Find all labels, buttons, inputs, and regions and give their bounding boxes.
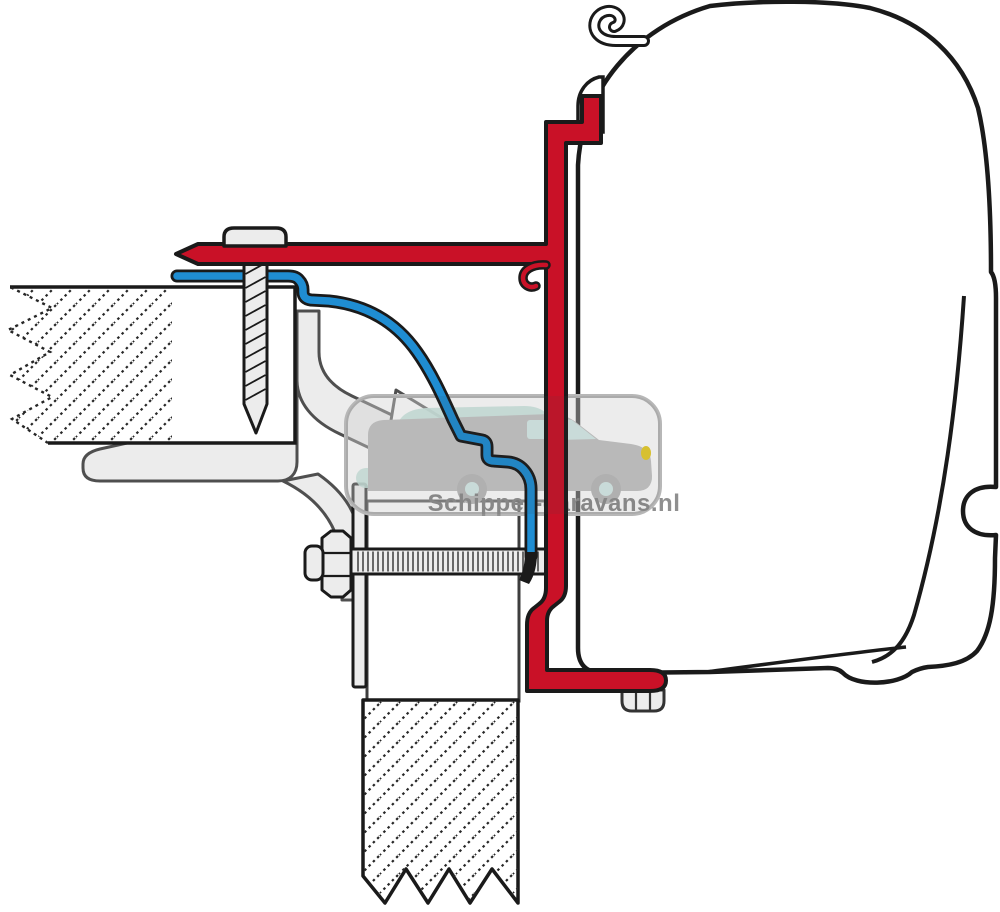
clamp-plate xyxy=(353,484,366,687)
case-silhouette xyxy=(578,2,996,683)
hex-nut xyxy=(322,531,351,597)
diagram-canvas: Schipper-caravans.nl xyxy=(0,0,1000,912)
bolt-end-cap xyxy=(305,546,323,580)
watermark-overlay xyxy=(346,396,660,514)
wall-section-hatching xyxy=(361,698,521,906)
fixing-screw xyxy=(244,256,267,433)
wall-panel-section xyxy=(361,698,521,906)
hex-bolt-icon xyxy=(622,690,664,711)
spacer-block xyxy=(367,501,519,701)
screw-head xyxy=(224,228,286,246)
mounting-hook-icon xyxy=(594,11,644,41)
awning-case-body xyxy=(578,2,996,683)
roof-section-hatching xyxy=(6,285,172,445)
